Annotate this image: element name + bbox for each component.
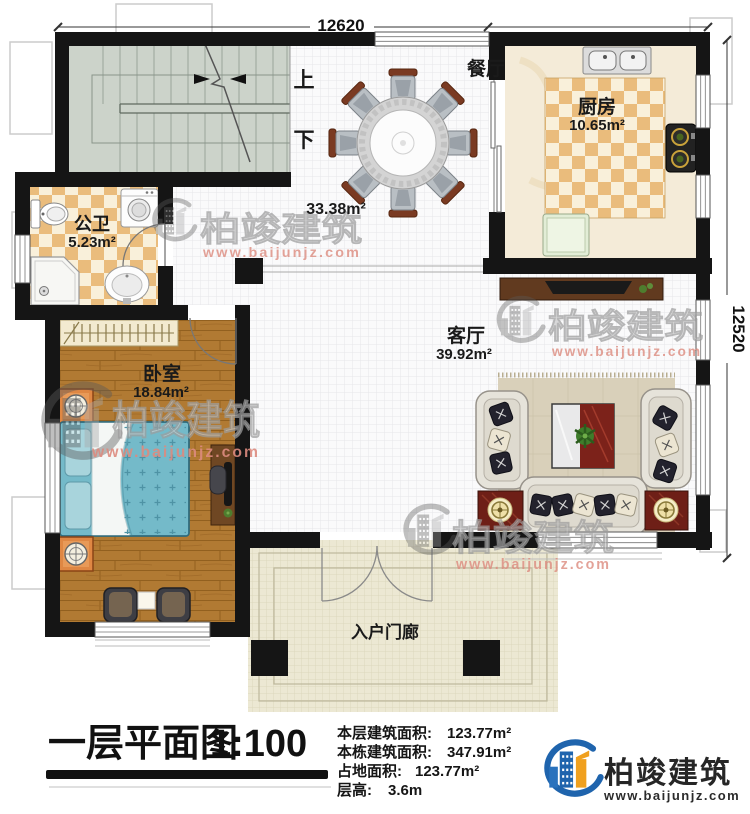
shower xyxy=(31,257,79,305)
window xyxy=(375,32,489,46)
dimension-right: 12520 xyxy=(729,305,748,352)
stat-label: 层高: xyxy=(337,781,372,799)
pillow xyxy=(65,482,91,529)
window xyxy=(95,622,210,637)
room-label-bedroom: 卧室 xyxy=(143,362,181,385)
area-label-bathroom: 5.23m² xyxy=(68,234,116,251)
floorplan-drawing: 柏竣建筑 www.baijunjz.com 柏竣建筑 www.baijunjz.… xyxy=(0,0,750,814)
dimension-top: 12620 xyxy=(317,16,364,35)
watermark-url: www.baijunjz.com xyxy=(202,245,361,260)
coffee-table xyxy=(552,404,614,468)
watermark-text: 柏竣建筑 xyxy=(452,517,614,558)
room-label-kitchen: 厨房 xyxy=(578,95,616,118)
porch-column xyxy=(251,640,288,676)
kitchen-stove xyxy=(666,124,696,172)
floorplan-page: 柏竣建筑 www.baijunjz.com 柏竣建筑 www.baijunjz.… xyxy=(0,0,750,814)
area-label-hall: 33.38m² xyxy=(306,201,366,218)
end-table-right xyxy=(645,491,688,530)
area-label-bedroom: 18.84m² xyxy=(133,384,189,401)
stat-label: 本层建筑面积: xyxy=(337,724,432,742)
room-label-porch: 入户门廊 xyxy=(351,622,419,642)
refrigerator xyxy=(543,214,589,256)
kitchen-sink xyxy=(583,47,651,74)
room-label-dining: 餐厅 xyxy=(467,57,505,80)
stair-down-label: 下 xyxy=(294,129,315,152)
sofa-set xyxy=(476,375,691,536)
window xyxy=(696,75,710,128)
plan-scale: 1:100 xyxy=(210,723,307,765)
brand-url: www.baijunjz.com xyxy=(603,788,740,803)
stat-value: 123.77m² xyxy=(415,763,479,780)
watermark-text: 柏竣建筑 xyxy=(548,307,703,346)
stat-value: 347.91m² xyxy=(447,744,511,761)
tv xyxy=(545,281,632,294)
area-label-living: 39.92m² xyxy=(436,346,492,363)
wardrobe xyxy=(60,320,178,346)
watermark-text: 柏竣建筑 xyxy=(112,399,260,443)
porch-column xyxy=(463,640,500,676)
area-label-kitchen: 10.65m² xyxy=(569,117,625,134)
room-label-living: 客厅 xyxy=(447,324,485,347)
desk-chair xyxy=(210,466,226,494)
watermark-url: www.baijunjz.com xyxy=(455,557,611,573)
window xyxy=(696,175,710,218)
window xyxy=(15,235,30,283)
title-underline xyxy=(46,770,328,779)
side-table xyxy=(138,592,155,609)
watermark-url: www.baijunjz.com xyxy=(91,444,260,461)
stat-label: 占地面积: xyxy=(337,762,402,780)
stat-value: 3.6m xyxy=(388,782,422,799)
stat-value: 123.77m² xyxy=(447,725,511,742)
stair-up-label: 上 xyxy=(294,69,315,92)
staircase xyxy=(69,44,290,172)
watermark-url: www.baijunjz.com xyxy=(551,343,702,359)
dining-table-set xyxy=(329,69,477,217)
room-label-bathroom: 公卫 xyxy=(74,214,110,234)
brand-name: 柏竣建筑 xyxy=(604,756,732,790)
stat-label: 本栋建筑面积: xyxy=(337,743,432,761)
nightstand-bottom xyxy=(59,537,93,571)
window xyxy=(696,385,710,495)
